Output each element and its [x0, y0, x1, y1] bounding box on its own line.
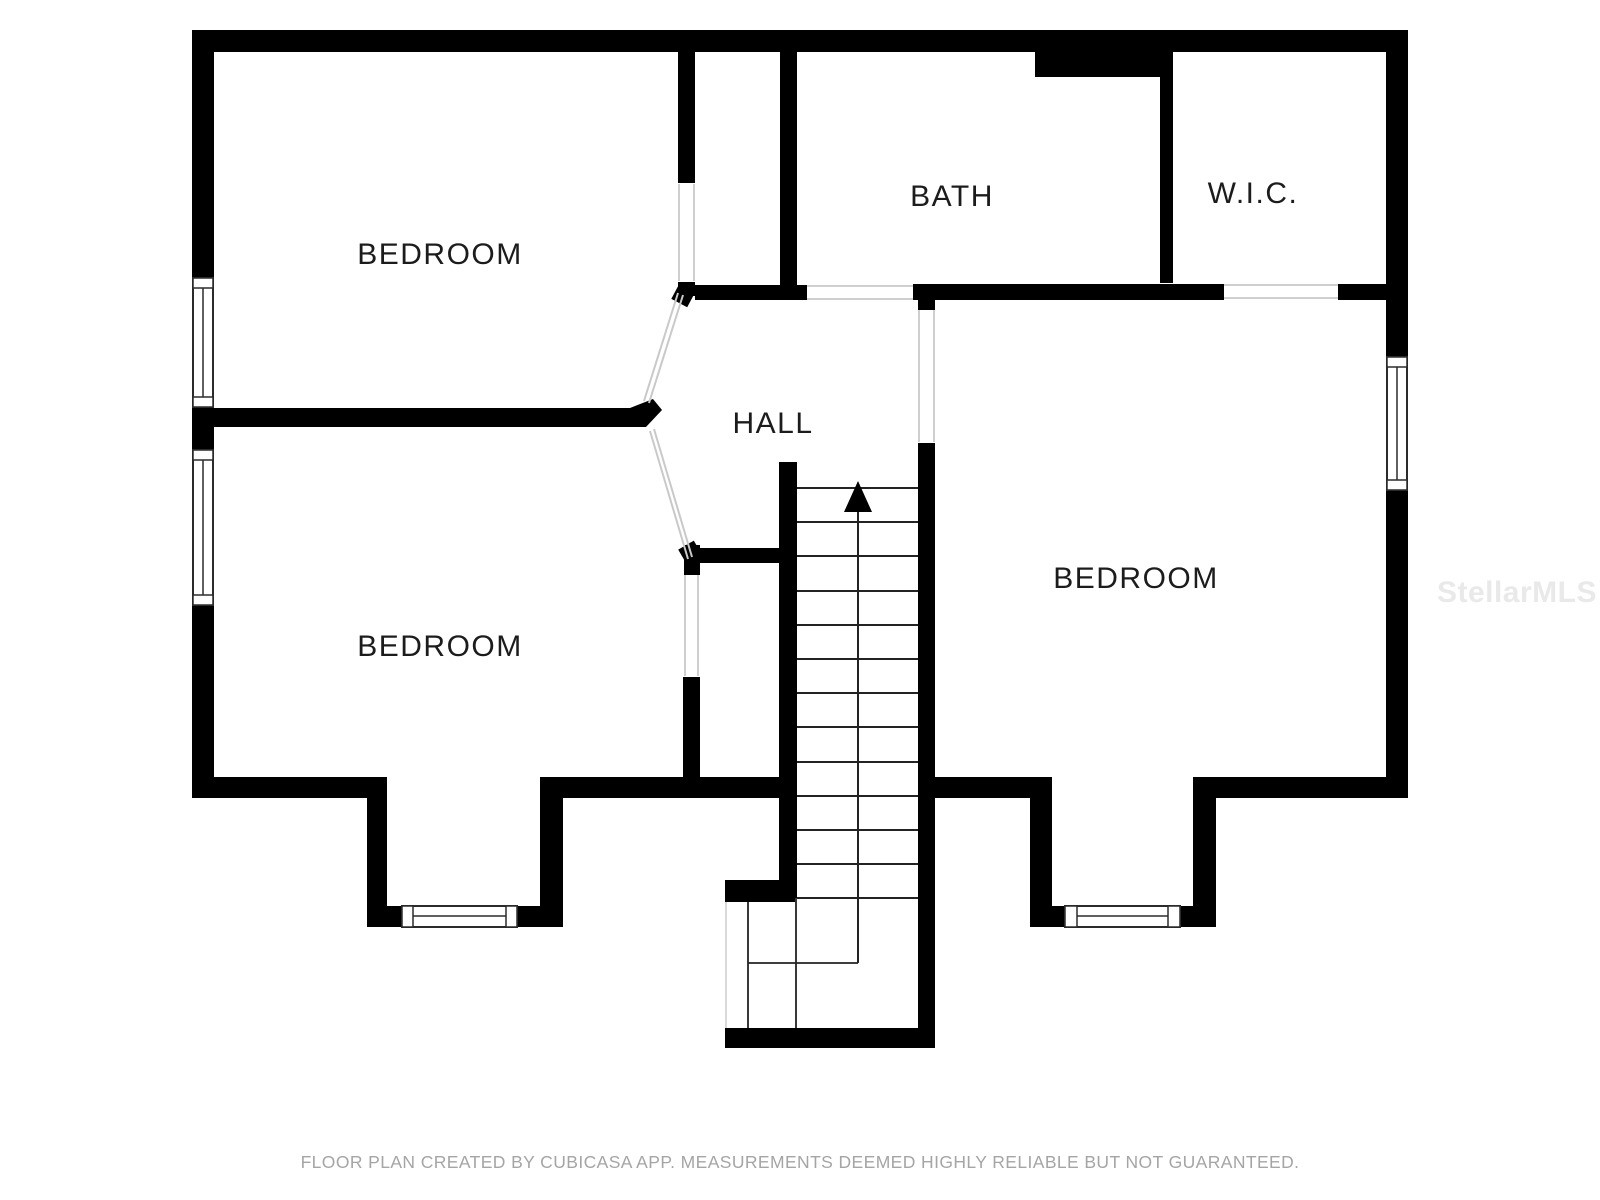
wall-under-bath	[913, 284, 1224, 300]
wall-bath-west	[780, 52, 797, 300]
wall-closet-north	[700, 548, 779, 563]
wall-closet-west	[683, 677, 700, 797]
wall-bedroom-tl-east	[678, 52, 695, 183]
wall-top	[192, 30, 1408, 52]
wall-bottom-mid	[563, 777, 779, 798]
door-stub-bedroom-right	[918, 300, 935, 310]
door-leaf-bedroom-tl	[644, 293, 683, 403]
wall-left-upper	[192, 52, 214, 278]
wall-divider-angled-end	[630, 399, 662, 427]
window-left-upper	[193, 278, 213, 407]
wall-top-notch	[1035, 52, 1162, 77]
wall-bottom-right-b	[1216, 777, 1408, 798]
room-label-wic: W.I.C.	[1208, 177, 1299, 210]
wall-right-upper	[1386, 52, 1408, 357]
door-leaf-bedroom-bl	[650, 429, 692, 559]
opening-bath-door	[807, 286, 913, 299]
window-right	[1387, 357, 1407, 490]
dormer-right-wall-e	[1193, 777, 1216, 927]
window-dormer-left	[402, 906, 517, 927]
room-label-bedroom-right: BEDROOM	[1053, 562, 1219, 595]
wall-bottom-left	[192, 777, 367, 798]
opening-wic-door	[1224, 285, 1338, 298]
wall-stair-west	[779, 462, 797, 898]
wall-left-bedrooms-divider	[192, 408, 640, 427]
opening-bedroom-tl-closet	[679, 184, 694, 281]
stellar-mls-watermark: StellarMLS	[1437, 576, 1597, 609]
stair-winders	[726, 898, 858, 1028]
dormer-left-wall-e	[540, 777, 563, 927]
floor-plan-page: BEDROOM BATH W.I.C. HALL BEDROOM BEDROOM…	[0, 0, 1600, 1200]
footer-disclaimer: FLOOR PLAN CREATED BY CUBICASA APP. MEAS…	[301, 1152, 1300, 1172]
wall-stair-notch	[725, 880, 795, 902]
staircase	[726, 481, 918, 1028]
room-label-bedroom-top-left: BEDROOM	[357, 238, 523, 271]
wall-stair-east	[918, 443, 935, 1048]
wall-hall-north	[695, 285, 807, 300]
dormer-right-wall-w	[1030, 777, 1052, 927]
wall-bottom-right-a	[935, 777, 1030, 798]
wall-right-lower	[1386, 490, 1408, 798]
room-label-bedroom-bottom-left: BEDROOM	[357, 630, 523, 663]
wall-left-lower	[192, 605, 214, 798]
window-dormer-right	[1065, 906, 1180, 927]
opening-closet-door	[685, 575, 698, 676]
wall-stair-south	[725, 1028, 935, 1048]
room-label-hall: HALL	[732, 407, 813, 440]
window-left-lower	[193, 450, 213, 605]
opening-bedroom-right-door	[919, 310, 934, 442]
room-label-bath: BATH	[910, 180, 994, 213]
dormer-left-wall-w	[367, 777, 387, 927]
floor-plan: BEDROOM BATH W.I.C. HALL BEDROOM BEDROOM…	[0, 0, 1600, 1200]
stairs-up-arrow-icon	[844, 481, 872, 512]
wall-under-wic-east	[1338, 284, 1386, 300]
wall-bath-wic-divider	[1160, 52, 1173, 283]
